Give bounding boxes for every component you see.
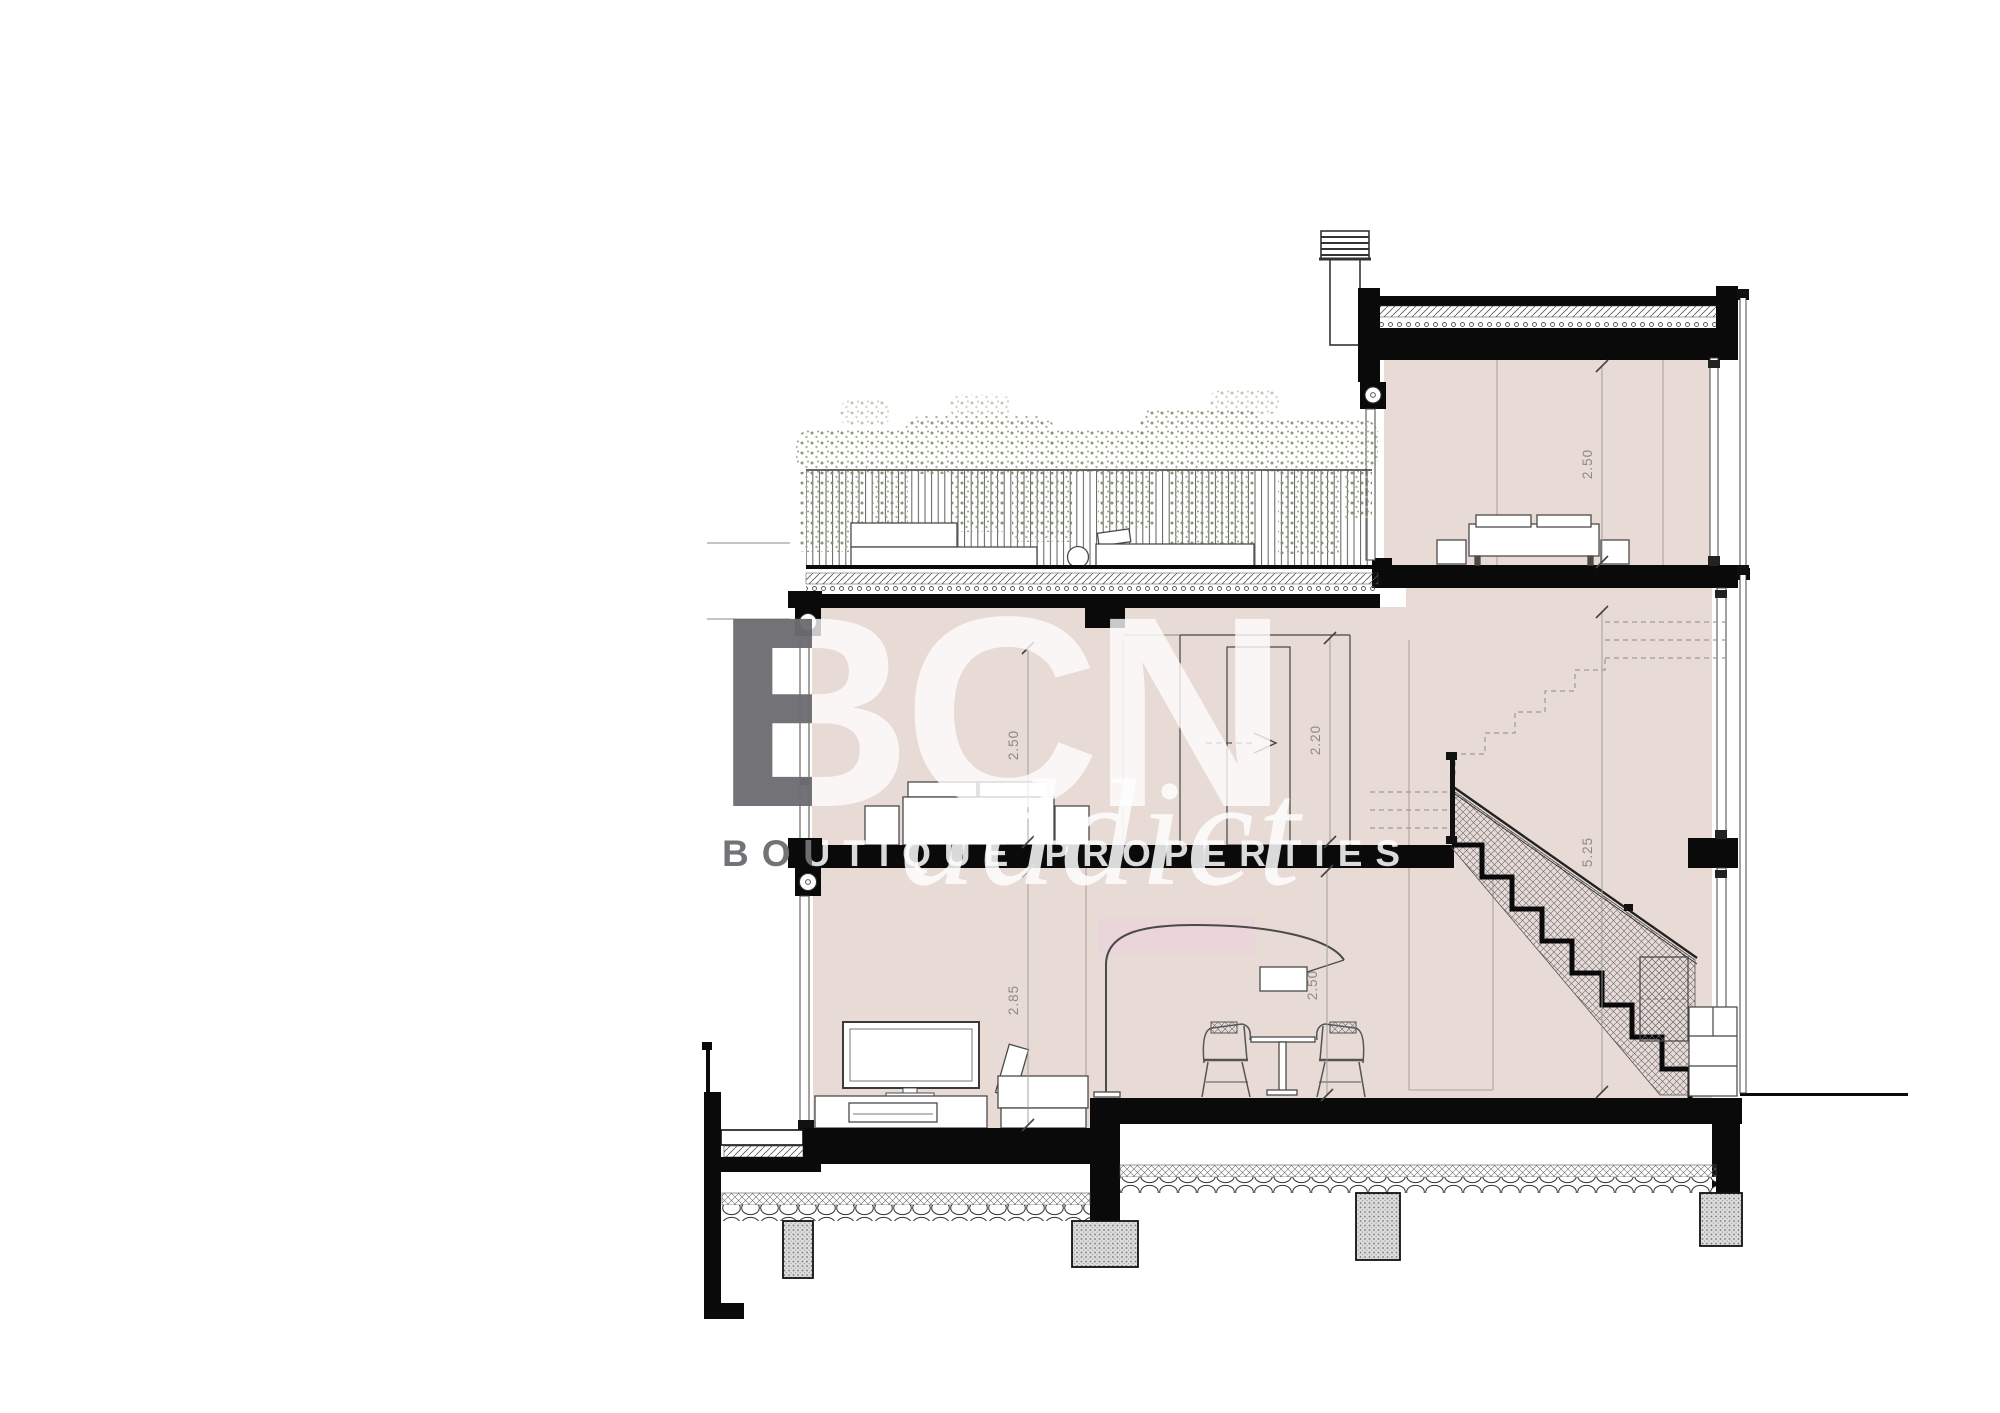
left-retaining-wall — [704, 1092, 721, 1305]
slab-right-transom — [1688, 838, 1738, 868]
top-floor-slab — [1382, 565, 1738, 588]
dim-stair-void: 5.25 — [1580, 837, 1595, 867]
dim-dining-room: 2.50 — [1305, 970, 1320, 1000]
window-ground-left — [800, 896, 809, 1122]
watermark-tagline: BOUTIQUE PROPERTIES — [722, 833, 1413, 874]
step-wall — [1090, 1098, 1120, 1221]
roof-slab — [1366, 296, 1718, 360]
highlight-block — [1098, 918, 1255, 954]
terrain-line-right — [1740, 1093, 1908, 1096]
media-console — [815, 1096, 987, 1128]
tv — [843, 1022, 979, 1097]
ground-slab-left — [803, 1128, 1090, 1164]
footing — [1700, 1193, 1742, 1246]
footing — [783, 1221, 813, 1278]
roller-blind-top-floor — [1360, 382, 1386, 409]
section-drawing-page: 2.50 2.85 2.20 2.50 5.25 2.50 BCN addict… — [0, 0, 2000, 1413]
ground-slab-right — [1120, 1098, 1742, 1124]
radiator — [1640, 957, 1688, 1041]
house-section-svg: 2.50 2.85 2.20 2.50 5.25 2.50 BCN addict… — [0, 0, 2000, 1413]
roof-parapet-left — [1358, 288, 1380, 382]
footing — [1356, 1193, 1400, 1260]
dim-top-room: 2.50 — [1580, 449, 1595, 479]
boundary-rail — [1740, 292, 1746, 1093]
window-middle-right — [1717, 588, 1726, 838]
dim-door: 2.20 — [1308, 725, 1323, 755]
built-in-cabinet — [1689, 1007, 1737, 1096]
right-foundation-wall — [1712, 1117, 1740, 1193]
footing — [1072, 1221, 1138, 1267]
window-top-right — [1710, 358, 1718, 565]
dim-ground-room: 2.85 — [1006, 985, 1021, 1015]
roof-parapet-right — [1716, 286, 1738, 360]
